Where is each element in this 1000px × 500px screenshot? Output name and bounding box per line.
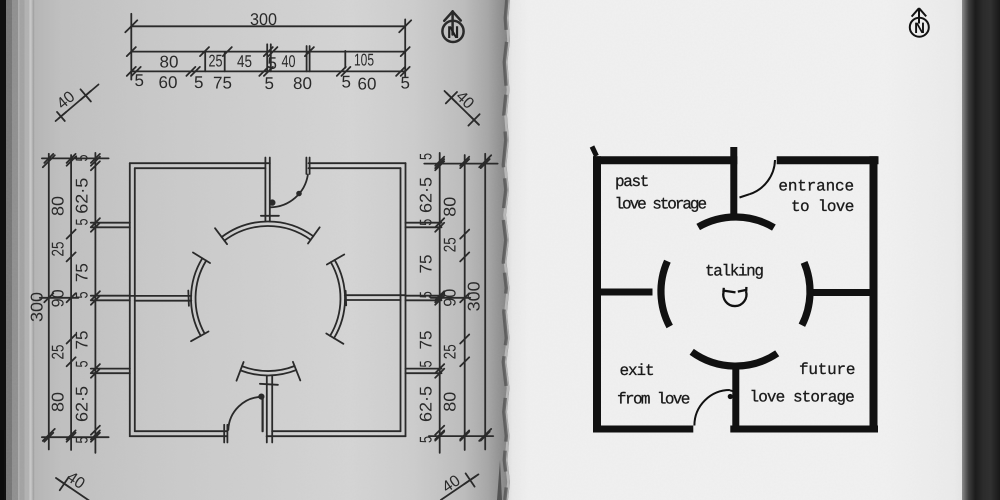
svg-text:62·5: 62·5 [417,177,436,213]
svg-text:5: 5 [401,74,410,93]
svg-text:entrance: entrance [778,178,854,196]
svg-text:300: 300 [250,10,277,29]
svg-text:future: future [799,361,855,379]
svg-text:60: 60 [159,73,178,92]
svg-text:from love: from love [617,391,690,409]
svg-text:45: 45 [237,52,252,71]
svg-text:5: 5 [342,73,351,92]
svg-text:love storage: love storage [615,196,707,214]
svg-text:62·5: 62·5 [417,386,436,422]
svg-text:N: N [914,20,925,37]
svg-text:to love: to love [791,198,854,216]
svg-text:love storage: love storage [750,389,855,407]
svg-text:75: 75 [73,331,92,350]
svg-text:N: N [447,23,459,42]
svg-text:300: 300 [465,281,484,311]
svg-text:5: 5 [265,74,274,93]
svg-text:300: 300 [28,292,47,322]
svg-text:past: past [615,173,648,191]
svg-text:80: 80 [160,53,179,72]
svg-text:5: 5 [417,291,436,298]
svg-text:25: 25 [441,237,460,252]
svg-text:80: 80 [441,197,460,217]
svg-text:5: 5 [73,361,92,368]
svg-text:80: 80 [293,74,312,93]
svg-text:62·5: 62·5 [73,386,92,422]
svg-text:75: 75 [417,255,436,274]
svg-text:75: 75 [417,331,436,350]
svg-text:talking: talking [705,263,763,281]
svg-text:5: 5 [73,437,92,444]
svg-text:5: 5 [417,219,436,226]
svg-text:75: 75 [73,263,92,282]
svg-text:5: 5 [417,153,436,160]
svg-text:5: 5 [417,436,436,443]
svg-text:exit: exit [620,362,654,380]
svg-text:5: 5 [73,219,92,226]
svg-text:62·5: 62·5 [73,178,92,214]
svg-text:60: 60 [358,75,377,94]
svg-text:25: 25 [49,345,68,360]
svg-text:90: 90 [441,289,460,307]
svg-text:80: 80 [49,392,68,412]
svg-text:90: 90 [49,289,68,307]
svg-text:5: 5 [135,71,144,90]
svg-text:25: 25 [209,52,223,71]
svg-text:5: 5 [73,292,92,299]
svg-text:25: 25 [49,242,68,257]
svg-text:75: 75 [213,74,232,93]
svg-text:25: 25 [441,344,460,359]
svg-text:105: 105 [354,51,374,70]
svg-text:5: 5 [73,155,92,162]
svg-text:40: 40 [282,52,296,71]
svg-text:80: 80 [49,196,68,216]
svg-text:5: 5 [417,361,436,368]
svg-text:5: 5 [194,73,203,92]
svg-text:80: 80 [441,392,460,412]
